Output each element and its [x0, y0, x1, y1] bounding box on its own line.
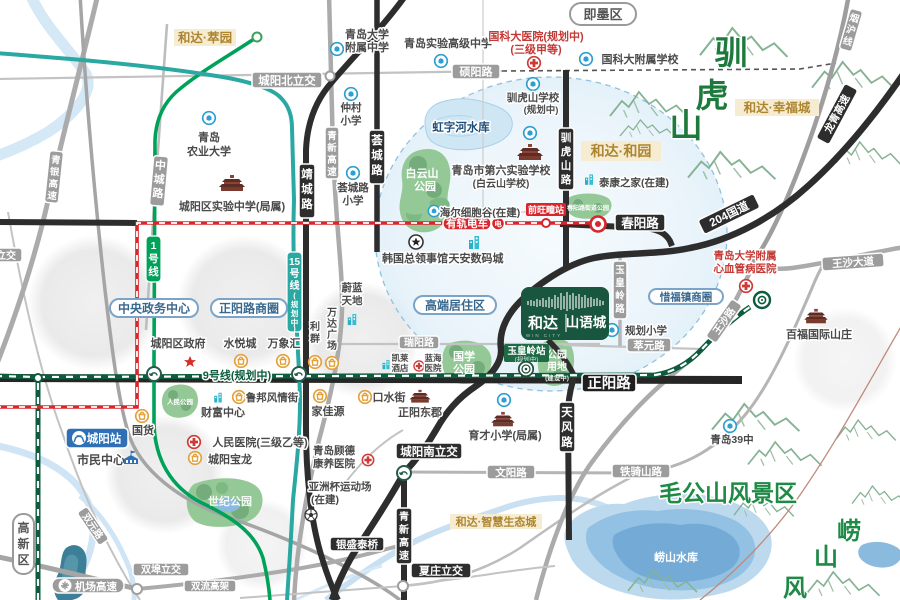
svg-text:高: 高 [48, 177, 59, 190]
svg-text:利: 利 [310, 320, 320, 333]
svg-text:青: 青 [50, 154, 61, 167]
svg-text:文阳路: 文阳路 [494, 466, 527, 479]
svg-text:用地: 用地 [546, 360, 567, 373]
svg-text:靖: 靖 [301, 167, 313, 181]
svg-text:公园: 公园 [547, 349, 567, 361]
svg-text:9号线(规划中): 9号线(规划中) [203, 368, 272, 382]
svg-text:虎: 虎 [561, 145, 572, 158]
svg-text:国科大医院(规划中): 国科大医院(规划中) [488, 29, 584, 43]
svg-text:城阳区政府: 城阳区政府 [151, 336, 206, 350]
svg-text:虹字河水库: 虹字河水库 [432, 120, 490, 134]
svg-text:公园: 公园 [414, 180, 436, 193]
svg-text:附属中学: 附属中学 [345, 40, 389, 54]
svg-text:口水街: 口水街 [373, 390, 406, 404]
svg-text:小学: 小学 [340, 114, 362, 127]
svg-text:双埠立交: 双埠立交 [141, 563, 181, 576]
svg-text:高: 高 [17, 520, 29, 535]
svg-text:双流高架: 双流高架 [190, 581, 230, 593]
svg-text:城阳区实验中学(局属): 城阳区实验中学(局属) [179, 199, 286, 213]
svg-text:高端居住区: 高端居住区 [425, 298, 485, 313]
svg-text:玉: 玉 [615, 265, 625, 276]
svg-text:皇: 皇 [615, 277, 625, 289]
svg-text:蔚蓝: 蔚蓝 [342, 281, 363, 294]
svg-text:毛公山风景区: 毛公山风景区 [659, 480, 797, 506]
svg-text:15: 15 [289, 257, 301, 268]
svg-text:青: 青 [399, 510, 409, 523]
svg-text:中央政务中心: 中央政务中心 [118, 301, 190, 316]
svg-text:山: 山 [814, 544, 838, 571]
svg-text:青岛大学附属: 青岛大学附属 [714, 249, 777, 262]
svg-text:路: 路 [615, 303, 625, 315]
svg-text:心血管病医院: 心血管病医院 [714, 262, 777, 275]
svg-text:仲村: 仲村 [341, 101, 362, 114]
svg-text:路: 路 [301, 197, 313, 211]
svg-text:农业大学: 农业大学 [186, 144, 231, 158]
svg-text:青: 青 [327, 130, 337, 142]
svg-text:山语城: 山语城 [566, 314, 607, 330]
svg-text:速: 速 [327, 166, 337, 178]
svg-text:青岛实验高级中学: 青岛实验高级中学 [404, 36, 492, 50]
svg-text:崂: 崂 [837, 518, 861, 545]
svg-text:和达·幸福城: 和达·幸福城 [743, 100, 811, 115]
svg-text:高: 高 [327, 154, 337, 166]
svg-text:财富中心: 财富中心 [200, 405, 245, 419]
svg-text:蓝海: 蓝海 [424, 353, 442, 363]
svg-text:硕阳路: 硕阳路 [460, 65, 494, 79]
svg-text:(在建): (在建) [311, 493, 339, 506]
svg-text:青岛市第六实验学校: 青岛市第六实验学校 [452, 163, 552, 177]
svg-text:水悦城: 水悦城 [224, 336, 257, 350]
svg-text:速: 速 [47, 189, 58, 202]
svg-text:场: 场 [327, 339, 337, 352]
svg-text:即墨区: 即墨区 [583, 7, 622, 22]
svg-text:城阳宝龙: 城阳宝龙 [208, 452, 252, 466]
svg-text:(规划中): (规划中) [524, 104, 559, 116]
svg-text:凯莱: 凯莱 [391, 353, 409, 363]
svg-text:银盛泰桥: 银盛泰桥 [336, 538, 378, 551]
svg-text:城: 城 [301, 182, 313, 196]
svg-text:天安数码城: 天安数码城 [449, 251, 504, 265]
svg-text:规划小学: 规划小学 [625, 324, 667, 337]
svg-text:万象汇: 万象汇 [267, 336, 301, 350]
svg-text:康养医院: 康养医院 [313, 457, 355, 470]
svg-text:国货: 国货 [132, 423, 154, 437]
svg-text:正阳路商圈: 正阳路商圈 [219, 301, 279, 316]
svg-text:百福国际山庄: 百福国际山庄 [786, 327, 852, 341]
svg-text:韩国总领事馆: 韩国总领事馆 [382, 251, 448, 265]
svg-text:春阳路街道公园: 春阳路街道公园 [566, 204, 609, 212]
svg-text:划: 划 [291, 308, 299, 318]
svg-text:家佳源: 家佳源 [312, 404, 345, 418]
svg-text:青岛39中: 青岛39中 [710, 433, 753, 446]
svg-text:新: 新 [399, 523, 409, 536]
svg-text:泰康之家(在建): 泰康之家(在建) [598, 176, 669, 189]
svg-text:崂山水库: 崂山水库 [654, 550, 698, 564]
svg-text:路: 路 [371, 163, 383, 177]
svg-text:瑞阳路: 瑞阳路 [404, 336, 435, 349]
svg-text:风: 风 [561, 420, 573, 434]
svg-text:新: 新 [327, 142, 337, 154]
svg-text:城: 城 [153, 172, 165, 187]
svg-text:正阳路: 正阳路 [587, 374, 631, 392]
svg-text:群: 群 [310, 332, 320, 345]
svg-text:山: 山 [561, 159, 572, 172]
svg-text:驯: 驯 [715, 34, 748, 71]
svg-text:荟: 荟 [370, 133, 383, 147]
svg-text:青岛: 青岛 [198, 130, 220, 144]
svg-text:岭: 岭 [615, 290, 625, 302]
svg-text:城阳站: 城阳站 [87, 432, 122, 446]
svg-text:路: 路 [561, 173, 572, 186]
svg-text:天: 天 [561, 406, 573, 419]
svg-text:区: 区 [17, 553, 29, 567]
svg-text:人民医院(三级乙等): 人民医院(三级乙等) [212, 435, 308, 449]
svg-text:青岛顾德: 青岛顾德 [313, 444, 355, 457]
svg-text:春阳路: 春阳路 [620, 216, 659, 231]
svg-text:玉皇岭站: 玉皇岭站 [507, 345, 546, 357]
svg-text:规: 规 [291, 299, 299, 309]
svg-text:萃元路: 萃元路 [633, 339, 665, 352]
svg-text:天地: 天地 [342, 294, 363, 307]
svg-text:达: 达 [327, 317, 337, 330]
svg-text:驯虎山学校: 驯虎山学校 [507, 91, 560, 104]
svg-text:鲁邦风情街: 鲁邦风情街 [245, 391, 299, 404]
svg-text:(白云山学校): (白云山学校) [473, 177, 530, 190]
svg-text:万: 万 [326, 307, 337, 319]
svg-text:公园: 公园 [453, 363, 475, 376]
svg-text:立交: 立交 [0, 249, 16, 262]
svg-text:(三级甲等): (三级甲等) [510, 42, 562, 56]
svg-text:和达·智慧生态城: 和达·智慧生态城 [456, 515, 537, 529]
svg-text:育才小学(局属): 育才小学(局属) [468, 428, 542, 442]
svg-text:国科大附属学校: 国科大附属学校 [602, 52, 680, 66]
svg-text:城阳南立交: 城阳南立交 [400, 445, 458, 459]
svg-text:亚洲杯运动场: 亚洲杯运动场 [309, 480, 372, 493]
svg-text:白云山: 白云山 [406, 166, 439, 180]
svg-text:银: 银 [49, 166, 60, 179]
svg-text:山: 山 [670, 107, 703, 144]
svg-text:小学: 小学 [342, 194, 364, 207]
svg-text:青岛大学: 青岛大学 [345, 27, 389, 41]
svg-text:(建设中): (建设中) [545, 373, 569, 382]
svg-text:正阳东郡: 正阳东郡 [398, 405, 442, 419]
svg-text:人民公园: 人民公园 [167, 397, 194, 406]
svg-text:中: 中 [154, 158, 166, 173]
svg-text:前旺疃站: 前旺疃站 [528, 204, 564, 215]
svg-text:市民中心: 市民中心 [77, 452, 125, 467]
svg-text:新: 新 [17, 536, 29, 551]
svg-text:线: 线 [148, 265, 159, 278]
svg-text:1: 1 [151, 240, 157, 252]
svg-text:号: 号 [290, 268, 300, 280]
svg-text:和达·和园: 和达·和园 [591, 143, 652, 159]
svg-text:号: 号 [148, 253, 159, 265]
svg-text:和达: 和达 [528, 314, 558, 332]
svg-text:医院: 医院 [424, 363, 442, 373]
svg-text:海尔细胞谷(在建): 海尔细胞谷(在建) [440, 206, 521, 219]
svg-text:夏庄立交: 夏庄立交 [419, 564, 463, 578]
svg-text:酒店: 酒店 [391, 363, 409, 373]
svg-text:城阳北立交: 城阳北立交 [258, 74, 316, 88]
svg-text:世纪公园: 世纪公园 [208, 494, 252, 508]
svg-text:电: 电 [494, 219, 502, 229]
svg-text:荟城路: 荟城路 [336, 181, 369, 194]
svg-text:广: 广 [327, 328, 337, 341]
svg-text:城: 城 [371, 148, 383, 162]
svg-text:路: 路 [561, 435, 573, 449]
svg-text:机场高速: 机场高速 [75, 580, 117, 593]
svg-text:铁骑山路: 铁骑山路 [620, 465, 662, 478]
svg-text:国学: 国学 [453, 349, 475, 363]
svg-text:风: 风 [783, 575, 807, 600]
svg-text:WIN CITY: WIN CITY [526, 333, 562, 338]
svg-text:惜福镇商圈: 惜福镇商圈 [660, 291, 713, 304]
svg-text:高: 高 [399, 536, 409, 549]
svg-text:速: 速 [399, 549, 409, 562]
svg-text:和达·萃园: 和达·萃园 [177, 30, 232, 45]
svg-text:驯: 驯 [561, 131, 572, 144]
